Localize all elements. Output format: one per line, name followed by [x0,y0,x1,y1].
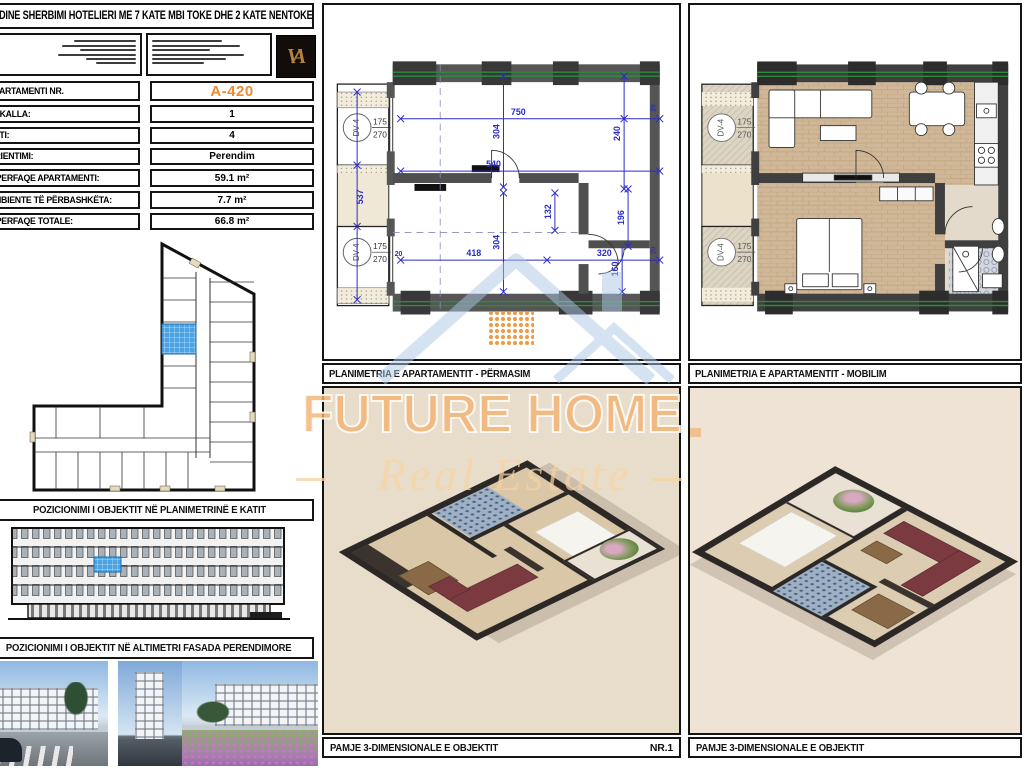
svg-text:270: 270 [737,254,751,264]
elevation-title: POZICIONIMI I OBJEKTIT NË ALTIMETRI FASA… [6,642,292,654]
keyplan-title-bar: POZICIONIMI I OBJEKTIT NË PLANIMETRINË E… [0,499,314,521]
row-apartment-number-value: A-420 [150,81,314,101]
floor-plan-furnished: DV-4 175 270 DV-4 175 270 [690,5,1020,359]
row-total-area-value: 66.8 m² [150,213,314,230]
svg-text:20: 20 [651,104,658,112]
svg-text:270: 270 [373,130,387,140]
key-floor-plan [10,232,310,497]
row-floor-label: KATI: [0,127,140,144]
svg-text:270: 270 [373,254,387,264]
keyplan-title: POZICIONIMI I OBJEKTIT NË PLANIMETRINË E… [32,504,265,516]
plan-furnished-box: DV-4 175 270 DV-4 175 270 [688,3,1022,361]
svg-text:240: 240 [612,126,622,141]
building-photo-3 [182,661,318,766]
svg-text:175: 175 [373,117,387,127]
row-common-area-label: AMBIENTE TË PËRBASHKËTA: [0,191,140,209]
balcony-door-symbol-top: DV-4 175 270 [708,114,755,142]
plan-furnished-title-bar: PLANIMETRIA E APARTAMENTIT - MOBILIM [688,363,1022,384]
balcony-door-symbol-bottom: DV-4 175 270 [708,238,755,266]
svg-text:DV-4: DV-4 [717,118,726,136]
contact-block-right [146,33,272,76]
isometric-apartment-2 [692,466,1018,647]
row-common-area-value: 7.7 m² [150,191,314,209]
svg-text:304: 304 [492,124,502,139]
isometric-apartment-1 [338,460,664,640]
svg-text:750: 750 [511,107,526,117]
row-orientation-value: Perendim [150,148,314,165]
sheet-title-bar: GODINE SHERBIMI HOTELIERI ME 7 KATE MBI … [0,3,314,29]
highlighted-unit-elevation [94,557,121,572]
svg-text:196: 196 [616,210,626,225]
svg-text:320: 320 [597,248,612,258]
building-photo-1 [0,661,108,766]
plan-dimensioned-title: PLANIMETRIA E APARTAMENTIT - PËRMASIM [329,368,530,380]
row-apartment-area-label: SIPERFAQE APARTAMENTI: [0,169,140,187]
render-3d-title-1: PAMJE 3-DIMENSIONALE E OBJEKTIT [330,742,498,754]
svg-text:20: 20 [651,246,658,254]
plan-dimensioned-title-bar: PLANIMETRIA E APARTAMENTIT - PËRMASIM [322,363,681,384]
floor-plan-dimensioned: DV-4 175 270 DV-4 175 270 [324,5,679,359]
row-orientation-label: ORIENTIMI: [0,148,140,165]
svg-text:304: 304 [492,235,502,250]
row-apartment-area-value: 59.1 m² [150,169,314,187]
render-3d-title-2: PAMJE 3-DIMENSIONALE E OBJEKTIT [696,742,864,754]
svg-text:418: 418 [466,248,481,258]
svg-text:175: 175 [737,117,751,127]
elevation-title-bar: POZICIONIMI I OBJEKTIT NË ALTIMETRI FASA… [0,637,314,659]
row-stair-value: 1 [150,105,314,123]
render-3d-number: NR.1 [650,742,673,754]
row-total-area-label: SIPERFAQE TOTALE: [0,213,140,230]
balcony-door-symbol-top: DV-4 175 270 [343,114,390,142]
datasheet: { "header": { "title": "GODINE SHERBIMI … [0,0,1024,768]
middle-panel: DV-4 175 270 DV-4 175 270 [322,0,681,768]
highlighted-unit-keyplan [162,324,196,354]
va-logo-monogram: VA [287,44,305,69]
plan-dimensioned-box: DV-4 175 270 DV-4 175 270 [322,3,681,361]
contact-block-left [0,33,142,76]
right-panel: DV-4 175 270 DV-4 175 270 PLANIMETRIA E … [688,0,1022,768]
apartment-number: A-420 [210,83,253,100]
balcony-door-symbol-bottom: DV-4 175 270 [343,238,390,266]
building-photo-2 [112,661,190,766]
left-panel: GODINE SHERBIMI HOTELIERI ME 7 KATE MBI … [0,0,318,768]
plan-furnished-title: PLANIMETRIA E APARTAMENTIT - MOBILIM [695,368,886,380]
svg-text:20: 20 [395,251,403,258]
svg-text:540: 540 [486,159,501,169]
svg-text:175: 175 [373,241,387,251]
row-floor-value: 4 [150,127,314,144]
render-3d-title-bar-1: PAMJE 3-DIMENSIONALE E OBJEKTIT NR.1 [322,737,681,758]
row-stair-label: SHKALLA: [0,105,140,123]
render-3d-view-2 [688,386,1022,735]
svg-text:175: 175 [737,241,751,251]
row-apartment-number-label: APARTAMENTI NR. [0,81,140,101]
svg-text:160: 160 [610,262,620,277]
render-3d-view-1 [322,386,681,735]
svg-text:270: 270 [737,130,751,140]
svg-text:DV-4: DV-4 [717,243,726,261]
elevation-drawing [0,524,300,636]
va-logo: VA [276,35,316,78]
svg-text:132: 132 [543,204,553,219]
render-3d-title-bar-2: PAMJE 3-DIMENSIONALE E OBJEKTIT [688,737,1022,758]
svg-text:537: 537 [355,189,365,204]
sheet-title: GODINE SHERBIMI HOTELIERI ME 7 KATE MBI … [0,10,313,22]
